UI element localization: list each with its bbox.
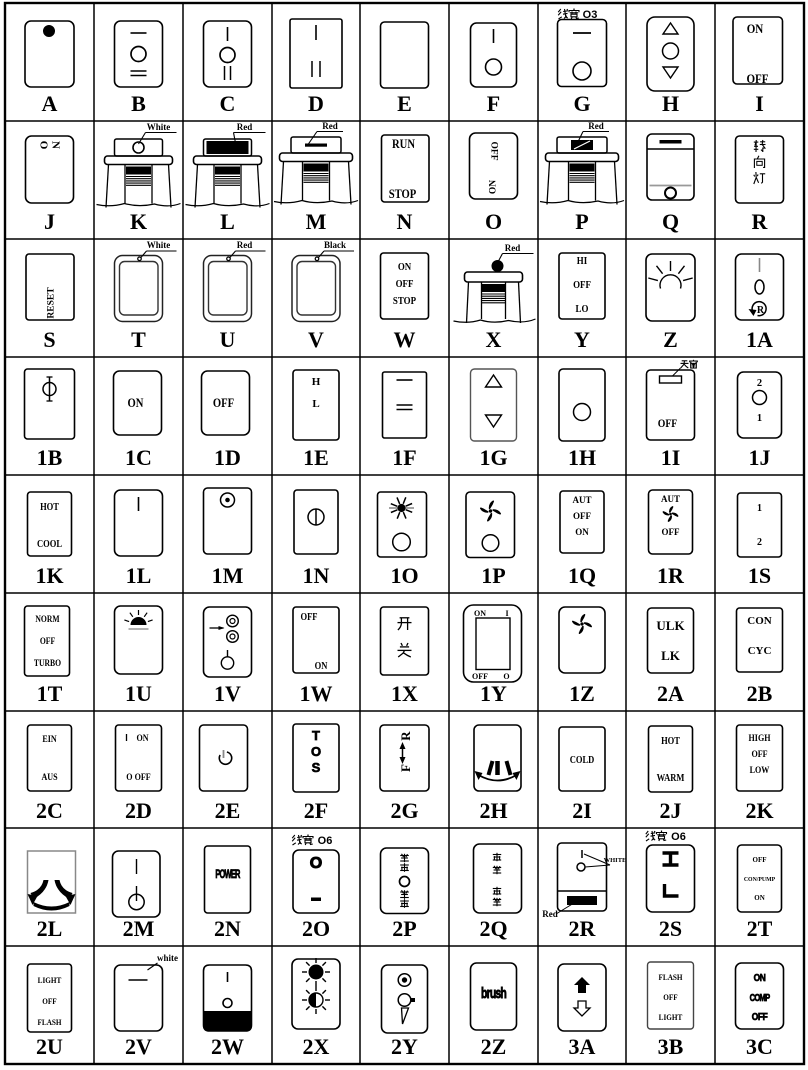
svg-text:K: K	[130, 209, 147, 234]
svg-text:HOT: HOT	[661, 736, 681, 747]
svg-text:OFF: OFF	[213, 396, 234, 410]
svg-text:OFF: OFF	[42, 996, 57, 1006]
svg-text:1W: 1W	[300, 681, 333, 706]
svg-text:OFF: OFF	[751, 748, 767, 759]
svg-text:I: I	[505, 609, 508, 618]
svg-text:T: T	[312, 728, 320, 743]
svg-text:F: F	[398, 764, 413, 772]
svg-text:2: 2	[757, 378, 762, 389]
svg-text:COMP: COMP	[750, 992, 770, 1003]
svg-text:H: H	[312, 376, 321, 388]
svg-text:2Y: 2Y	[391, 1034, 418, 1059]
svg-text:OFF: OFF	[752, 1011, 768, 1023]
svg-text:2O: 2O	[302, 916, 330, 941]
svg-text:2G: 2G	[390, 798, 418, 823]
svg-text:U: U	[220, 327, 236, 352]
svg-text:HIGH: HIGH	[749, 732, 771, 743]
svg-text:2P: 2P	[392, 916, 416, 941]
svg-text:Black: Black	[324, 240, 346, 250]
svg-text:LOW: LOW	[750, 764, 770, 775]
svg-text:1B: 1B	[37, 445, 63, 470]
svg-text:COLD: COLD	[570, 755, 595, 766]
svg-text:FLASH: FLASH	[658, 972, 682, 982]
svg-text:Red: Red	[542, 909, 558, 919]
svg-text:X: X	[486, 327, 502, 352]
svg-text:1L: 1L	[126, 563, 152, 588]
svg-text:ON: ON	[128, 396, 145, 410]
svg-text:Red: Red	[237, 122, 253, 132]
svg-text:O6: O6	[671, 831, 686, 843]
svg-text:HOT: HOT	[40, 502, 60, 513]
svg-text:2: 2	[757, 537, 762, 548]
svg-text:ON: ON	[747, 21, 764, 36]
svg-text:Red: Red	[322, 121, 338, 131]
svg-text:AUS: AUS	[41, 771, 57, 782]
svg-text:G: G	[573, 91, 590, 116]
svg-text:2F: 2F	[304, 798, 328, 823]
svg-text:1P: 1P	[481, 563, 505, 588]
svg-text:O: O	[485, 209, 502, 234]
svg-text:2W: 2W	[211, 1034, 244, 1059]
svg-text:STOP: STOP	[393, 295, 416, 307]
svg-text:2N: 2N	[214, 916, 241, 941]
svg-text:2I: 2I	[572, 798, 592, 823]
svg-text:1Q: 1Q	[568, 563, 596, 588]
svg-text:E: E	[397, 91, 412, 116]
svg-text:1J: 1J	[749, 445, 771, 470]
svg-text:LIGHT: LIGHT	[38, 975, 62, 985]
svg-text:2K: 2K	[745, 798, 773, 823]
svg-text:2A: 2A	[657, 681, 684, 706]
svg-text:OFF: OFF	[472, 672, 488, 681]
svg-text:TURBO: TURBO	[34, 658, 62, 668]
svg-text:1G: 1G	[479, 445, 507, 470]
svg-text:Red: Red	[588, 121, 604, 131]
svg-text:2M: 2M	[123, 916, 155, 941]
svg-text:2B: 2B	[747, 681, 773, 706]
svg-text:N: N	[397, 209, 413, 234]
svg-text:A: A	[42, 91, 58, 116]
svg-text:LIGHT: LIGHT	[659, 1012, 683, 1022]
svg-text:1S: 1S	[748, 563, 771, 588]
svg-text:WHITE: WHITE	[604, 857, 627, 864]
svg-text:2D: 2D	[125, 798, 152, 823]
svg-text:OFF: OFF	[396, 278, 414, 290]
svg-text:CYC: CYC	[748, 645, 772, 657]
svg-text:white: white	[157, 953, 178, 963]
svg-text:2Z: 2Z	[481, 1034, 507, 1059]
svg-text:Red: Red	[505, 243, 521, 253]
svg-text:1O: 1O	[390, 563, 418, 588]
svg-text:STOP: STOP	[389, 187, 417, 201]
svg-text:V: V	[308, 327, 324, 352]
svg-text:3B: 3B	[658, 1034, 684, 1059]
svg-text:O: O	[311, 744, 321, 759]
svg-text:1Z: 1Z	[569, 681, 595, 706]
svg-text:brush: brush	[481, 984, 507, 1001]
svg-text:1K: 1K	[35, 563, 63, 588]
svg-text:O OFF: O OFF	[126, 771, 150, 782]
svg-text:1I: 1I	[661, 445, 681, 470]
svg-text:2V: 2V	[125, 1034, 152, 1059]
svg-text:1U: 1U	[125, 681, 152, 706]
svg-text:2E: 2E	[215, 798, 241, 823]
svg-text:ON: ON	[474, 609, 486, 618]
svg-text:Y: Y	[574, 327, 590, 352]
svg-text:EIN: EIN	[42, 733, 57, 744]
svg-text:1A: 1A	[746, 327, 773, 352]
svg-text:L: L	[220, 209, 235, 234]
svg-text:Z: Z	[663, 327, 678, 352]
svg-text:R: R	[757, 305, 765, 316]
svg-text:J: J	[44, 209, 55, 234]
svg-text:White: White	[147, 122, 171, 132]
svg-text:S: S	[43, 327, 55, 352]
svg-text:HI: HI	[577, 255, 588, 267]
svg-text:RESET: RESET	[47, 287, 57, 319]
svg-text:1D: 1D	[214, 445, 241, 470]
svg-text:F: F	[487, 91, 500, 116]
svg-text:C: C	[220, 91, 236, 116]
svg-text:POWER: POWER	[215, 868, 240, 881]
svg-text:W: W	[394, 327, 416, 352]
svg-text:CON/PUMP: CON/PUMP	[744, 877, 776, 883]
svg-text:B: B	[131, 91, 146, 116]
svg-text:O: O	[38, 141, 50, 150]
svg-text:2H: 2H	[479, 798, 507, 823]
svg-text:Q: Q	[662, 209, 679, 234]
svg-text:N: N	[50, 141, 62, 149]
svg-text:AUT: AUT	[661, 494, 680, 504]
svg-text:O: O	[503, 672, 509, 681]
svg-text:OFF: OFF	[573, 511, 591, 521]
svg-text:2J: 2J	[660, 798, 682, 823]
svg-text:LO: LO	[576, 303, 589, 315]
svg-text:S: S	[312, 760, 321, 775]
svg-text:2S: 2S	[659, 916, 682, 941]
svg-text:OFF: OFF	[753, 856, 767, 864]
svg-text:T: T	[131, 327, 146, 352]
svg-text:P: P	[575, 209, 588, 234]
svg-text:2L: 2L	[37, 916, 63, 941]
svg-text:OFF: OFF	[40, 636, 55, 646]
svg-text:M: M	[306, 209, 327, 234]
svg-text:2C: 2C	[36, 798, 63, 823]
svg-text:Red: Red	[237, 240, 253, 250]
svg-text:D: D	[308, 91, 324, 116]
svg-text:R: R	[398, 731, 413, 741]
svg-text:ON: ON	[575, 527, 589, 537]
svg-text:COOL: COOL	[37, 539, 62, 550]
svg-text:1N: 1N	[303, 563, 330, 588]
svg-text:CON: CON	[747, 615, 772, 627]
svg-text:1T: 1T	[37, 681, 63, 706]
svg-text:OFF: OFF	[573, 279, 591, 291]
svg-text:OFF: OFF	[489, 142, 499, 161]
svg-text:FLASH: FLASH	[37, 1017, 61, 1027]
svg-text:2X: 2X	[303, 1034, 330, 1059]
svg-text:I: I	[755, 91, 764, 116]
svg-text:ON: ON	[754, 972, 766, 984]
svg-text:1X: 1X	[391, 681, 418, 706]
svg-text:2U: 2U	[36, 1034, 63, 1059]
svg-text:OFF: OFF	[663, 992, 678, 1002]
svg-text:1F: 1F	[392, 445, 416, 470]
svg-text:LK: LK	[661, 648, 681, 663]
svg-text:ON: ON	[398, 261, 411, 273]
svg-text:NORM: NORM	[35, 614, 59, 624]
svg-text:O: O	[310, 855, 322, 872]
svg-text:White: White	[147, 240, 171, 250]
svg-text:ON: ON	[136, 732, 149, 743]
svg-text:ON: ON	[489, 180, 499, 194]
svg-text:R: R	[752, 209, 769, 234]
svg-text:AUT: AUT	[572, 495, 591, 505]
svg-text:H: H	[662, 91, 679, 116]
svg-text:2Q: 2Q	[479, 916, 507, 941]
svg-text:2T: 2T	[747, 916, 773, 941]
svg-text:OFF: OFF	[662, 527, 680, 537]
svg-text:ON: ON	[754, 894, 765, 902]
svg-text:OFF: OFF	[746, 71, 768, 86]
svg-text:1V: 1V	[214, 681, 241, 706]
svg-text:1Y: 1Y	[480, 681, 507, 706]
svg-text:OFF: OFF	[301, 612, 318, 623]
svg-text:3A: 3A	[569, 1034, 596, 1059]
svg-text:1H: 1H	[568, 445, 596, 470]
svg-text:1C: 1C	[125, 445, 152, 470]
svg-text:L: L	[312, 398, 319, 410]
svg-text:O6: O6	[318, 835, 333, 847]
svg-text:1E: 1E	[303, 445, 329, 470]
svg-text:1: 1	[757, 413, 762, 424]
svg-text:3C: 3C	[746, 1034, 773, 1059]
svg-text:ULK: ULK	[656, 618, 685, 633]
svg-text:2R: 2R	[569, 916, 597, 941]
svg-text:1R: 1R	[657, 563, 685, 588]
svg-text:RUN: RUN	[392, 137, 416, 151]
svg-text:1M: 1M	[212, 563, 244, 588]
svg-text:ON: ON	[315, 661, 328, 672]
svg-text:WARM: WARM	[657, 773, 685, 784]
svg-text:OFF: OFF	[658, 417, 678, 430]
svg-text:1: 1	[757, 503, 762, 514]
